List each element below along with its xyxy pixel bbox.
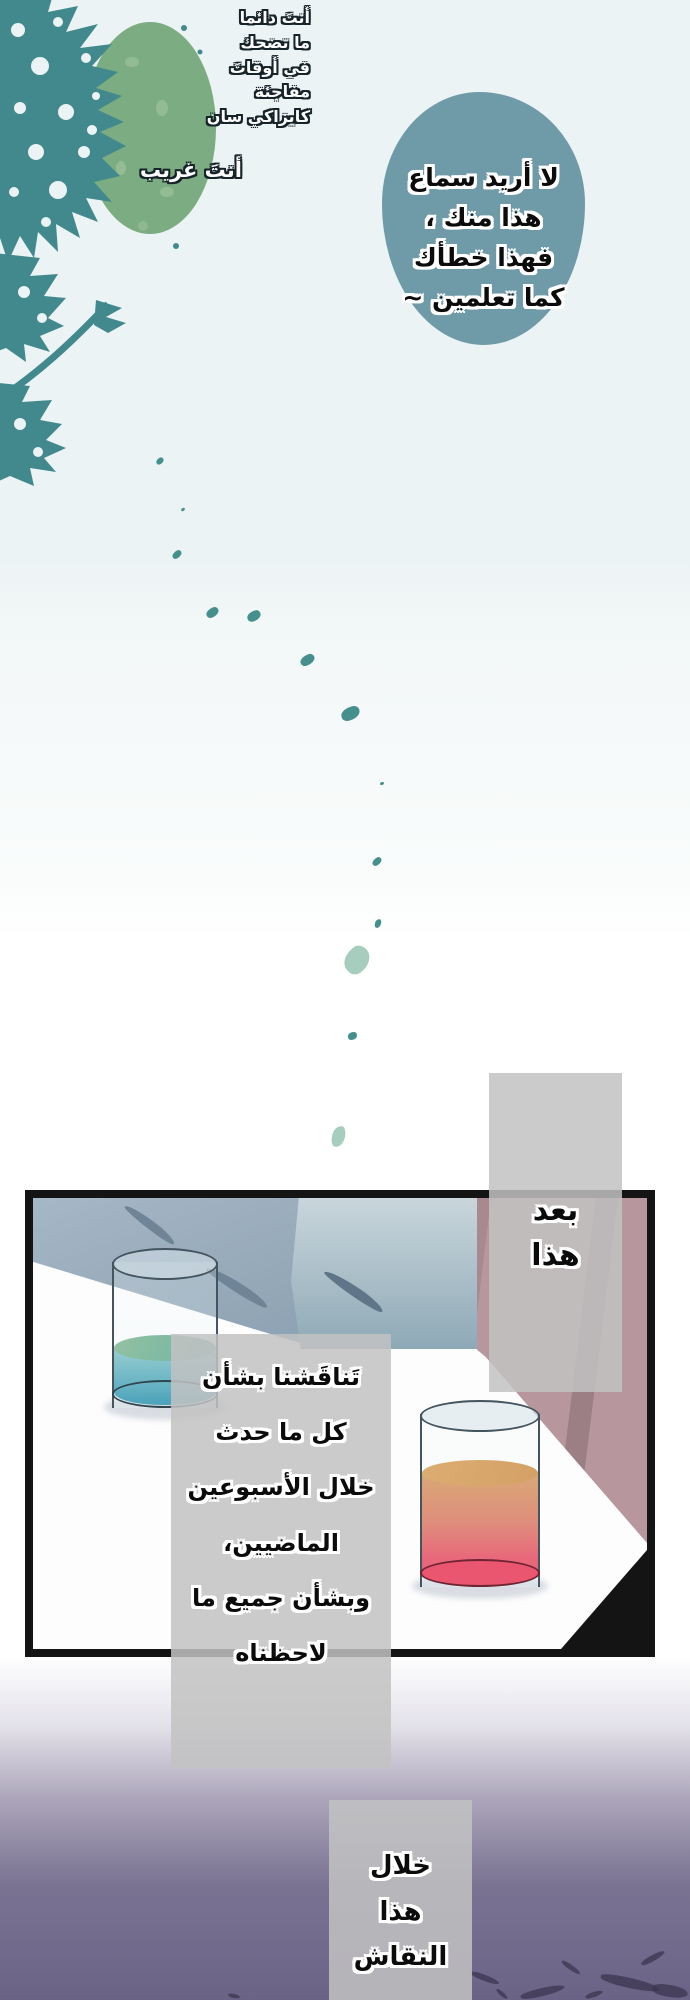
glass-bottom	[420, 1559, 540, 1587]
cloth-shadow	[123, 1202, 177, 1247]
debris-speck	[470, 1970, 500, 1986]
caption-line: كل ما حدث	[171, 1405, 391, 1460]
person-center-torso	[291, 1198, 487, 1349]
caption-sudden-laugh: أنتَ دائما ما تضحك في أوقاتَ مفاجئة كايز…	[180, 6, 310, 130]
table-edge-shadow	[561, 1550, 647, 1649]
caption-line: الماضيين،	[171, 1516, 391, 1571]
falling-leaf	[380, 782, 384, 785]
bubble-line: فهذا خطأك	[382, 238, 585, 278]
caption-you-are-strange: أنتَ غريب	[112, 158, 242, 182]
caption-line: ما تضحك	[180, 31, 310, 56]
falling-leaf	[246, 609, 262, 623]
caption-line: لاحظناه	[171, 1626, 391, 1681]
caption-line: وبشأن جميع ما	[171, 1571, 391, 1626]
caption-box-discussion: تَناقَشنا بشأن كل ما حدث خلال الأسبوعين …	[171, 1334, 391, 1768]
falling-leaf	[371, 856, 383, 867]
caption-line: أنتَ دائما	[180, 6, 310, 31]
caption-line: هذا	[489, 1233, 622, 1278]
caption-line: تَناقَشنا بشأن	[171, 1350, 391, 1405]
falling-leaf	[181, 507, 186, 511]
caption-box-after-this: بعد هذا	[489, 1073, 622, 1392]
caption-line: بعد	[489, 1188, 622, 1233]
caption-line: في أوقاتَ	[180, 56, 310, 81]
caption-line: النقاش	[329, 1935, 472, 1981]
debris-speck	[651, 1983, 688, 2000]
caption-box-during-discussion: خلال هذا النقاش	[329, 1800, 472, 2000]
debris-speck	[495, 1988, 508, 2000]
debris-speck	[585, 1989, 604, 2000]
liquid-surface	[422, 1460, 538, 1486]
caption-line: كايزاكي سان	[180, 105, 310, 130]
falling-leaf	[331, 1125, 347, 1148]
falling-leaf	[340, 705, 362, 723]
caption-line: خلال الأسبوعين	[171, 1460, 391, 1515]
falling-leaf	[374, 918, 382, 928]
webtoon-page: أنتَ دائما ما تضحك في أوقاتَ مفاجئة كايز…	[0, 0, 690, 2000]
falling-leaf	[205, 606, 221, 620]
caption-line: هذا	[329, 1890, 472, 1936]
glass-rim	[112, 1248, 218, 1280]
falling-leaf	[339, 942, 376, 978]
bubble-line: هذا منك ،	[382, 198, 585, 238]
caption-line: مفاجئة	[180, 80, 310, 105]
speech-bubble: لا أريد سماع هذا منك ، فهذا خطأك كما تعل…	[382, 92, 585, 345]
debris-speck	[640, 1949, 666, 1967]
cloth-shadow	[322, 1267, 385, 1315]
debris-speck	[560, 1959, 581, 1975]
glass-red-drink	[420, 1400, 540, 1587]
bubble-line: كما تعلمين ~	[382, 278, 585, 318]
bubble-line: لا أريد سماع	[382, 158, 585, 198]
debris-speck	[228, 1993, 241, 1999]
debris-speck	[600, 1972, 661, 1994]
glass-rim	[420, 1400, 540, 1432]
falling-leaf	[348, 1032, 357, 1040]
falling-leaf	[171, 549, 183, 560]
speech-bubble-text: لا أريد سماع هذا منك ، فهذا خطأك كما تعل…	[382, 158, 585, 318]
falling-leaf	[299, 653, 317, 668]
caption-line: خلال	[329, 1844, 472, 1890]
debris-speck	[520, 1983, 566, 2000]
